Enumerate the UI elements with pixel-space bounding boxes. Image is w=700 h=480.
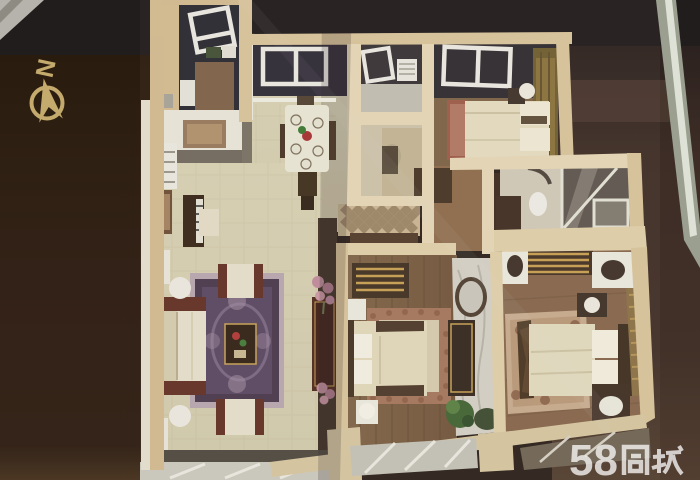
svg-text:58: 58 (569, 436, 618, 480)
